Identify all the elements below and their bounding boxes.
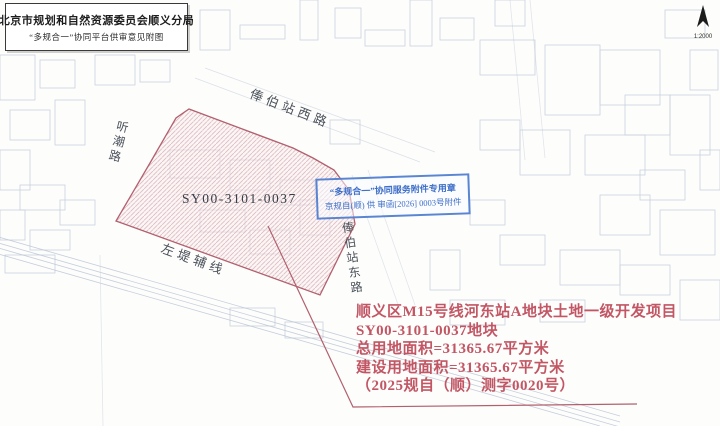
north-arrow-block: 1:2000: [690, 4, 716, 40]
map-attachment-page: 俸伯站西路 听潮路 俸伯站东路 左堤辅线 SY00-3101-0037 “多规合…: [0, 0, 720, 426]
north-arrow-icon: [690, 4, 716, 28]
title-box: 北京市规划和自然资源委员会顺义分局 “多规合一”协同平台供审意见附图: [5, 3, 188, 51]
approval-stamp: “多规合一”协同服务附件专用章 京规自(顺) 供 审函[2026] 0003号附…: [315, 173, 470, 219]
stamp-reference-number: 京规自(顺) 供 审函[2026] 0003号附件: [325, 196, 462, 213]
annotation-line: （2025规自（顺）测字0020号）: [356, 377, 677, 396]
annotation-block: 顺义区M15号线河东站A地块土地一级开发项目 SY00-3101-0037地块 …: [356, 303, 677, 396]
annotation-line: SY00-3101-0037地块: [356, 322, 677, 341]
annotation-line: 建设用地面积=31365.67平方米: [356, 359, 677, 378]
scale-label: 1:2000: [690, 34, 716, 40]
attachment-subtitle: “多规合一”协同平台供审意见附图: [29, 31, 164, 43]
org-title: 北京市规划和自然资源委员会顺义分局: [0, 12, 194, 28]
annotation-line: 顺义区M15号线河东站A地块土地一级开发项目: [356, 303, 677, 322]
annotation-line: 总用地面积=31365.67平方米: [356, 340, 677, 359]
parcel-id-label: SY00-3101-0037: [182, 191, 297, 207]
